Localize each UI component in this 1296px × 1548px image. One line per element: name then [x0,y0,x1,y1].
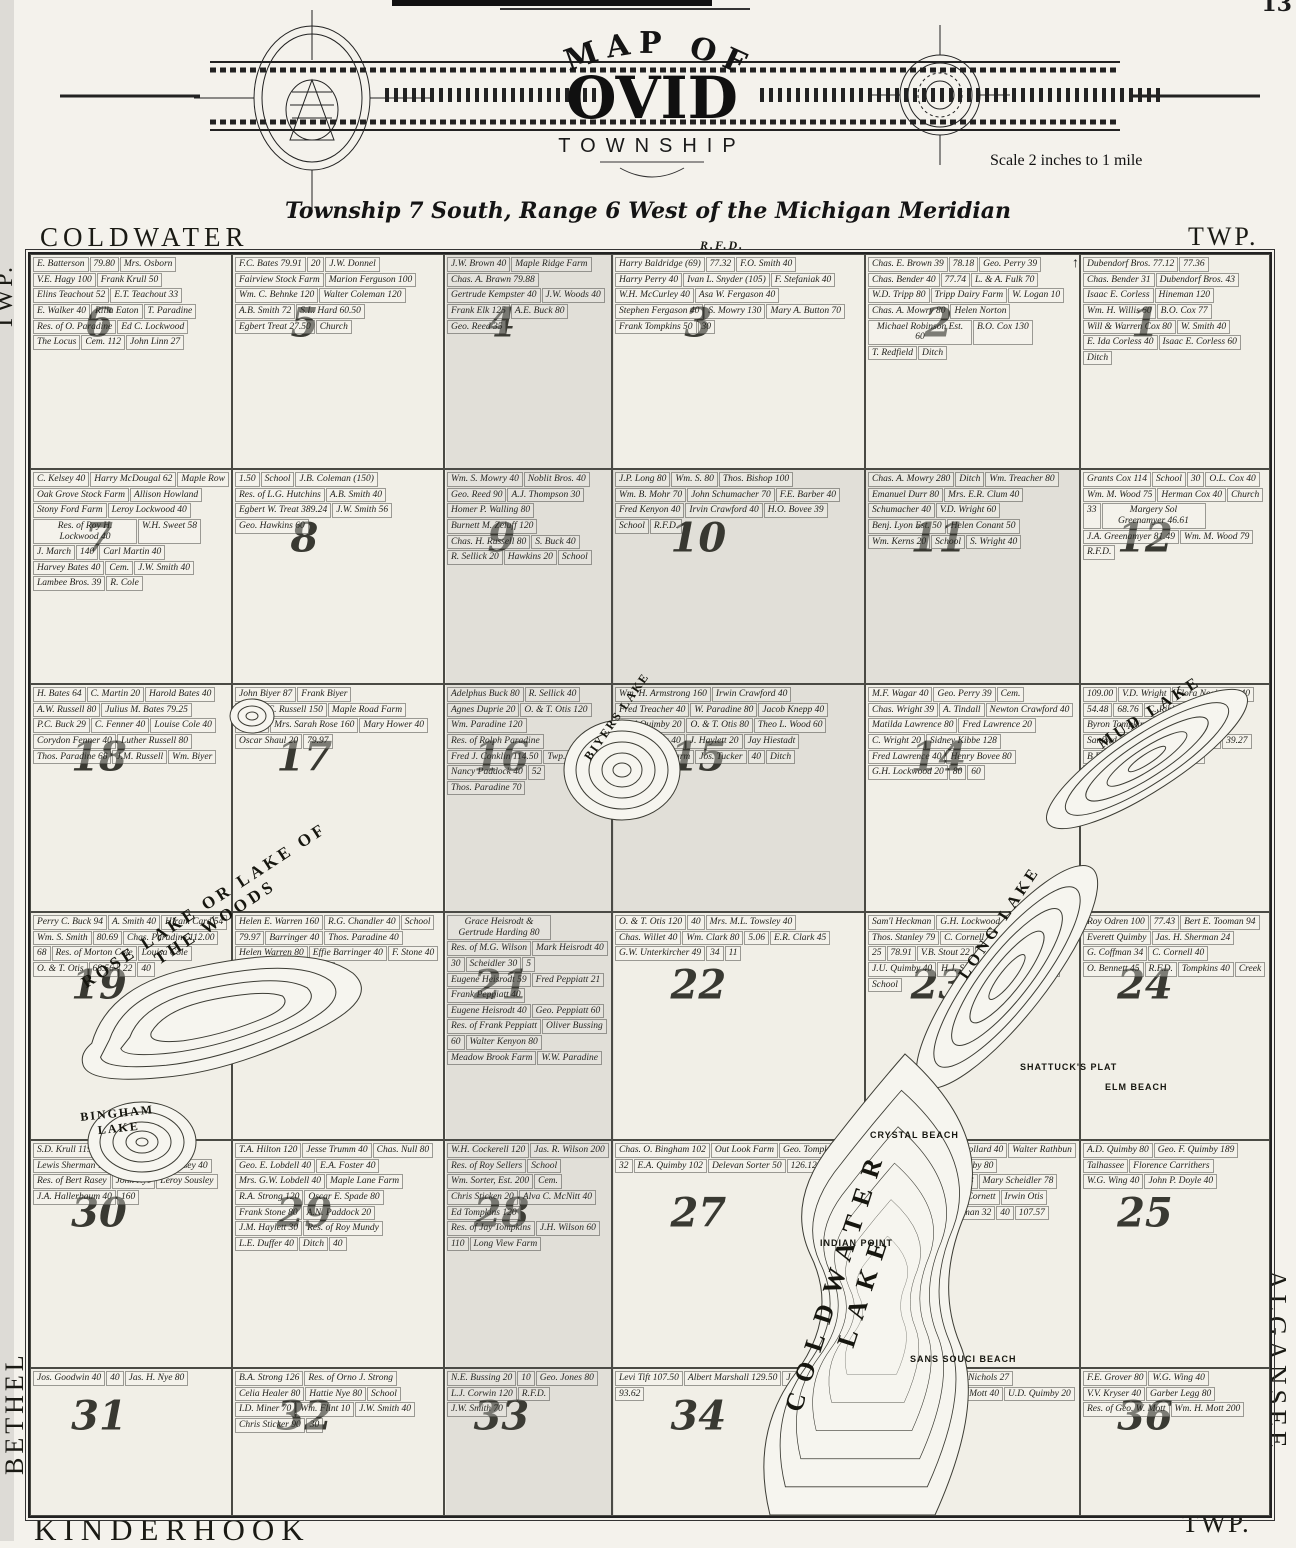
parcel-label: R.F.D. [1083,545,1115,560]
parcel-label: Fred J. Conklin 114.50 [447,750,542,765]
parcel-label: Irvin Crawford 40 [685,503,762,518]
parcel-label: Waldron 10 [1153,750,1205,765]
parcel-label: 40 [996,1206,1014,1221]
parcel-label: Twp. Hall [543,750,588,765]
parcel-label: V.D. Wright 60 [936,503,1000,518]
parcel-label: Fred Lawrence 40 [868,750,945,765]
parcel-list: B.A. Strong 126Res. of Orno J. StrongCel… [235,1371,441,1433]
parcel-label: Oak Grove Stock Farm [33,488,129,503]
parcel-label: 109.00 [1083,687,1117,702]
parcel-label: Mary A. Button 70 [766,304,845,319]
parcel-label: Dubendorf Bros. 43 [1156,273,1239,288]
parcel-label: 79.97 [303,734,332,749]
section-13: 13109.00V.D. WrightFlora Neairpass 4054.… [1080,684,1270,912]
parcel-label: Bert Rasey 40 [150,1159,211,1174]
parcel-label: U.D. Quimby 20 [1004,1387,1075,1402]
parcel-label: 52 [528,765,546,780]
parcel-label: C. Wright 20 [868,734,925,749]
parcel-list: Grace Heisrodt & Gertrude Harding 80Res.… [447,915,609,1065]
parcel-label: Chas. Paradine 112.00 [123,931,218,946]
parcel-label: Grants Cox 114 [1083,472,1151,487]
parcel-label: S. Buck 40 [531,535,579,550]
parcel-label: Frank Elk 125 [447,304,510,319]
parcel-label: M.F. Wagar 40 [868,687,932,702]
map-scale-note: Scale 2 inches to 1 mile [990,152,1142,169]
parcel-label: Res. of Orno J. Strong [304,1371,397,1386]
parcel-label: Luther Russell 80 [117,734,192,749]
parcel-label: Res. of Roy Sellers [447,1159,526,1174]
parcel-label: Dubendorf Bros. 77.12 [1083,257,1178,272]
parcel-label: 40 [748,750,766,765]
parcel-label: Everett Quimby [1083,931,1151,946]
parcel-label: 80.69 [93,931,122,946]
parcel-label: F.G. Pond 50 [1001,931,1060,946]
parcel-label: C. Cornell 40 [1148,946,1208,961]
parcel-label: W. Smith 40 [1177,320,1230,335]
parcel-label: L. & A. Fulk 70 [971,273,1038,288]
parcel-list: A.D. Quimby 80Geo. F. Quimby 189Talhasse… [1083,1143,1267,1189]
parcel-label: G.W. Unterkircher 49 [615,946,705,961]
parcel-label: Ed Tompkins 120 [447,1206,521,1221]
parcel-label: Louisa Cole [138,946,192,961]
parcel-label: Wm. Sorter, Est. 200 [447,1174,533,1189]
border-label-twp-top: TWP. [1188,222,1259,252]
parcel-label: Chris Sticker 90 [235,1418,305,1433]
parcel-label: Sam'l Heckman [868,915,935,930]
parcel-label: Harry McDougal 62 [90,472,176,487]
parcel-label: Geo. Peppiatt 60 [532,1004,605,1019]
parcel-list: Chas. O. Bingham 102Out Look FarmGeo. To… [615,1143,862,1173]
parcel-label: Wm. M. Wood 75 [1083,488,1156,503]
parcel-label: Cem. [105,561,133,576]
parcel-label: B.O. Cox 130 [973,320,1033,345]
parcel-label: Geo. Reed 90 [447,488,506,503]
parcel-label: C. Martin 20 [87,687,144,702]
parcel-label: Res. of Morton Cole [52,946,137,961]
parcel-label: Jay Hiestadt [744,734,800,749]
parcel-label: Alva C. McNitt 40 [519,1190,596,1205]
parcel-label: Thos. Stanley 79 [868,931,939,946]
parcel-label: J. March [33,545,75,560]
section-19: 19Perry C. Buck 94A. Smith 40Hiram Card … [30,912,232,1140]
parcel-label: Ditch [766,750,795,765]
parcel-list: E. Batterson79.80Mrs. OsbornV.E. Hagy 10… [33,257,229,350]
parcel-label: Wm. C. Behnke 120 [235,288,318,303]
parcel-label: Oliver Bussing [542,1019,607,1034]
parcel-label: Emma Noyes 40 [615,734,685,749]
parcel-list: N.E. Bussing 2010Geo. Jones 80L.J. Corwi… [447,1371,609,1417]
parcel-label: Thos. Paradine 70 [447,781,525,796]
parcel-label: Effie Barringer 40 [309,946,387,961]
parcel-list: Helen E. Warren 160R.G. Chandler 40Schoo… [235,915,441,977]
parcel-label: Michael Robinson Est. 60 [868,320,972,345]
parcel-label: Noblit Bros. 40 [524,472,590,487]
parcel-label: John P. Doyle 40 [1144,1174,1217,1189]
section-23: 23Sam'l HeckmanG.H. Lockwood 1697.86Thos… [865,912,1080,1140]
parcel-label: Marion Ferguson 100 [325,273,417,288]
parcel-label: 60 [447,1035,465,1050]
parcel-label: S.L. Hard 60.50 [296,304,365,319]
parcel-label: J.W. Smith 70 [447,1402,507,1417]
parcel-label: O. & T. Otis 80 [686,718,752,733]
parcel-label: Res. of Rolph Paradine [447,734,544,749]
parcel-label: C. Fenner 40 [91,718,149,733]
section-21: 21Grace Heisrodt & Gertrude Harding 80Re… [444,912,612,1140]
parcel-label: School [1152,472,1186,487]
parcel-label: Walter Coleman 120 [319,288,405,303]
parcel-label: Matilda Lawrence 80 [868,718,957,733]
parcel-label: 140 [76,545,98,560]
parcel-label: F. Stone 40 [388,946,438,961]
parcel-label: W.H. Cockerell 120 [447,1143,529,1158]
parcel-label: The Locus [33,335,80,350]
parcel-label: 1.50 [235,472,260,487]
parcel-label: Ditch [918,346,947,361]
parcel-label: 30 [447,957,465,972]
parcel-label: A. Tindall [939,703,984,718]
section-15: 15Wm. H. Armstrong 160Irwin Crawford 40F… [612,684,865,912]
parcel-label: 136.67 [235,718,269,733]
parcel-label: 30 [306,1418,324,1433]
parcel-label: 22 [119,962,137,977]
border-label-twp-left: TWP. [0,264,19,330]
parcel-label: F.E. Grover 80 [1083,1371,1147,1386]
parcel-label: Wm. Treacher 80 [985,472,1058,487]
parcel-list: E.W. Quimby 40O.L. Collard 40Walter Rath… [868,1143,1077,1220]
parcel-label: W. Logan 10 [1008,288,1064,303]
parcel-label: E.T. Teachout 33 [110,288,182,303]
parcel-label: John Linn 27 [126,335,184,350]
parcel-label: 40 [137,962,155,977]
parcel-label: Chas. H. Russell 80 [447,535,530,550]
parcel-label: 11 [725,946,742,961]
parcel-label: Jos. Tucker [695,750,746,765]
parcel-label: V.V. Kryser 40 [1083,1387,1145,1402]
parcel-label: Wm. Biyer [168,750,216,765]
parcel-label: 80 [949,765,967,780]
section-30: 30S.D. Krull 119.41T.A. HiltonLewis Sher… [30,1140,232,1368]
parcel-label: Lambee Bros. 39 [33,576,105,591]
parcel-label: Geo. E. Lobdell 40 [235,1159,315,1174]
parcel-label: V.E. Hagy 100 [33,273,96,288]
section-3: 3Harry Baldridge (69)77.32F.O. Smith 40H… [612,254,865,469]
parcel-label: V.D. Wright [1118,687,1170,702]
parcel-list: John Echtinaw 75O.F. Nichols 27Dora E. M… [868,1371,1077,1417]
parcel-list: Sam'l HeckmanG.H. Lockwood 1697.86Thos. … [868,915,1077,992]
parcel-label: J. Echtinaw [782,1371,835,1386]
parcel-label: Chas. Bender 31 [1083,273,1155,288]
parcel-label: Geo. Perry 39 [979,257,1041,272]
parcel-label: 107.57 [1015,1206,1049,1221]
section-5: 5F.C. Bates 79.9120J.W. DonnelFairview S… [232,254,444,469]
parcel-label: B.O. Cox 77 [1157,304,1212,319]
parcel-label: C. Cornell 16 [940,931,1000,946]
section-8: 81.50SchoolJ.B. Coleman (150)Res. of L.G… [232,469,444,684]
parcel-label: S. Wright 40 [966,535,1021,550]
parcel-label: J. Haylett 20 [686,734,743,749]
parcel-list: Perry C. Buck 94A. Smith 40Hiram Card 54… [33,915,229,977]
parcel-label: G.H. Lockwood 16 [936,915,1016,930]
parcel-label: Isaac E. Corless 60 [1159,335,1241,350]
parcel-label: Chas. Null 80 [373,1143,434,1158]
parcel-label: Wm. H. Armstrong 160 [615,687,711,702]
parcel-label: Harry Baldridge (69) [615,257,705,272]
parcel-label: Geo. Perry 39 [933,687,995,702]
parcel-label: E.A. Quimby 102 [634,1159,707,1174]
parcel-label: Maple Knoll Farm [615,750,694,765]
section-16: 16Adelphus Buck 80R. Sellick 40Agnes Dup… [444,684,612,912]
parcel-label: Res. of Frank Peppiatt [447,1019,541,1034]
parcel-label: 79.80 [90,257,119,272]
parcel-label: Geo. Tompkins 95 [779,1143,856,1158]
section-27: 27Chas. O. Bingham 102Out Look FarmGeo. … [612,1140,865,1368]
parcel-label: O. & T. Otis 120 [615,915,686,930]
parcel-label: 32 [615,1159,633,1174]
parcel-label: 110.00 [822,1159,855,1174]
parcel-label: 80 [317,962,335,977]
parcel-label: Emanuel Durr 80 [868,488,943,503]
parcel-label: Chas. Bender 40 [868,273,940,288]
parcel-label: Sanford Tompkins 40 [1083,734,1171,749]
parcel-label: E.A. Foster 40 [316,1159,379,1174]
parcel-list: S.D. Krull 119.41T.A. HiltonLewis Sherma… [33,1143,229,1205]
parcel-label: 25 [868,946,886,961]
section-36: 36F.E. Grover 80W.G. Wing 40V.V. Kryser … [1080,1368,1270,1516]
parcel-label: Wm. H. Mott 200 [1171,1402,1245,1417]
parcel-label: Mark Heisrodt 40 [532,941,608,956]
parcel-label: 68.76 [1113,703,1142,718]
parcel-label: John Echtinaw 75 [868,1371,945,1386]
section-35: 35John Echtinaw 75O.F. Nichols 27Dora E.… [865,1368,1080,1516]
section-22: 22O. & T. Otis 12040Mrs. M.L. Towsley 40… [612,912,865,1140]
parcel-list: Levi Tift 107.50Albert Marshall 129.50J.… [615,1371,862,1401]
parcel-label: Hiram Card 54 [161,915,227,930]
section-20: 20Helen E. Warren 160R.G. Chandler 40Sch… [232,912,444,1140]
parcel-label: F. Stefaniak 40 [771,273,836,288]
parcel-label: School [401,915,435,930]
parcel-label: Out Look Farm [711,1143,778,1158]
parcel-label: Res. of M.G. Wilson [447,941,531,956]
parcel-label: A. Tindall 70 [1165,718,1222,733]
section-33: 33N.E. Bussing 2010Geo. Jones 80L.J. Cor… [444,1368,612,1516]
parcel-label: Levi Tift 107.50 [615,1371,683,1386]
banner-top-rule [500,8,750,10]
parcel-label: Thos. Paradine 40 [324,931,402,946]
parcel-label: Helen Conant 50 [947,519,1020,534]
parcel-label: Scheidler 30 [466,957,522,972]
parcel-label: Fred Peppiatt 21 [532,973,605,988]
parcel-label: 39.27 [1222,734,1251,749]
parcel-label: 78.91 [887,946,916,961]
parcel-label: Irwin Crawford 40 [712,687,791,702]
parcel-label: Frank Muddle 100 [868,1174,947,1189]
parcel-label: Oscar Shaul 20 [235,734,302,749]
parcel-label: Nelson C. Russell 150 [235,703,327,718]
parcel-label: Louise Cole 40 [150,718,216,733]
left-emblem-icon [194,10,430,210]
parcel-label: Isaac E. Corless [1083,288,1154,303]
parcel-label: Celia Healer 80 [235,1387,304,1402]
parcel-label: A.B. Smith 72 [235,304,295,319]
parcel-label: Perry C. Buck 94 [33,915,107,930]
parcel-label: Frank Peppiatt 40 [447,988,525,1003]
parcel-label: Mrs. E.R. Clum 40 [944,488,1023,503]
parcel-label: Church [316,320,352,335]
section-number: 25 [1117,1190,1173,1237]
section-7: 7C. Kelsey 40Harry McDougal 62Maple RowO… [30,469,232,684]
parcel-label: Creek [1235,962,1265,977]
parcel-label: Wm. S. Smith [33,931,92,946]
parcel-label: 126.12 [787,1159,821,1174]
parcel-label: Flora Neairpass 40 [1172,687,1254,702]
parcel-label: Clark Sherman 32 [918,1206,996,1221]
parcel-label: 160 [117,1190,139,1205]
parcel-label: Jacob Knepp 40 [758,703,828,718]
parcel-label: Ed C. Lockwood [117,320,188,335]
parcel-label: Nancy Paddock 40 [447,765,527,780]
parcel-label: Fred Treacher 40 [615,703,689,718]
parcel-label: John Schumacher 70 [687,488,775,503]
parcel-label: Res. of O. Paradine [33,320,116,335]
parcel-label: Wm. S. 80 [671,472,718,487]
parcel-label: John Biyer 87 [235,687,296,702]
parcel-label: Dora E. Myers 40 [868,1387,945,1402]
parcel-label: Wm. Clark 80 [682,931,743,946]
parcel-label: Stony Ford Farm [33,503,107,518]
parcel-label: R.F.D. [650,519,682,534]
parcel-label: Maple Ridge Farm [511,257,591,272]
parcel-label: R.F.D. [518,1387,550,1402]
parcel-label: Eugene Heisrodt 40 [447,1004,531,1019]
parcel-label: Locas Hill 37 [1000,962,1060,977]
parcel-label: Frank Biyer [297,687,351,702]
parcel-label: Addison Tompkins [1083,765,1161,780]
parcel-label: Wm. B. Mohr 70 [615,488,686,503]
parcel-label: Mrs. G.W. Lobdell 40 [235,1174,325,1189]
parcel-label: Ditch [1083,351,1112,366]
parcel-label: 40 [329,1237,347,1252]
parcel-label: 77.74 [941,273,970,288]
parcel-label: N.E. Bussing 20 [447,1371,516,1386]
parcel-label: Fred Lawrence 20 [958,718,1035,733]
parcel-label: J.W. Smith 40 [355,1402,415,1417]
parcel-label: R.G. Chandler 40 [324,915,400,930]
parcel-label: Henry Bovee 80 [946,750,1015,765]
parcel-label: J.W. Donnel [325,257,379,272]
parcel-label: Gertrude Kempster 40 [447,288,541,303]
parcel-label: Res. of Roy H. Lockwood 40 [33,519,137,544]
parcel-label: Stephen Fergason 40 [615,304,703,319]
parcel-label: J.P. Long 80 [615,472,670,487]
parcel-label: Res. of Geo. W. Mott [1083,1402,1170,1417]
parcel-list: 109.00V.D. WrightFlora Neairpass 4054.48… [1083,687,1267,780]
parcel-label: F.O. Smith 40 [736,257,796,272]
parcel-label: Chas. O. Bingham 102 [615,1143,710,1158]
parcel-label: Allison Howland [130,488,202,503]
section-6: 6E. Batterson79.80Mrs. OsbornV.E. Hagy 1… [30,254,232,469]
parcel-label: 77.43 [1150,915,1179,930]
parcel-label: Res. of Roy Mundy [303,1221,383,1236]
parcel-label: J.W. Woods 40 [542,288,605,303]
parcel-list: Dubendorf Bros. 77.1277.36Chas. Bender 3… [1083,257,1267,365]
parcel-label: Chas. Willet 40 [615,931,681,946]
parcel-label: Agnes Duprie 20 [447,703,519,718]
parcel-label: Asa W. Fergason 40 [695,288,779,303]
parcel-label: 60 [967,765,985,780]
parcel-label: Church [1227,488,1263,503]
parcel-label: Newton Crawford 40 [986,703,1074,718]
parcel-label: Harvey Bates 40 [33,561,104,576]
parcel-label: Benj. Lyon Est. 50 [868,519,946,534]
parcel-label: W.D. Tripp 80 [868,288,930,303]
parcel-label: Harold Bates 40 [145,687,215,702]
parcel-label: Roy Odren 100 [1083,915,1149,930]
parcel-label: O. & T. Otis 120 [520,703,591,718]
sections-grid: 6E. Batterson79.80Mrs. OsbornV.E. Hagy 1… [30,254,1270,1516]
parcel-label: V.B. Stout 22 [917,946,974,961]
parcel-label: Adelphus Buck 80 [447,687,524,702]
section-9: 9Wm. S. Mowry 40Noblit Bros. 40Geo. Reed… [444,469,612,684]
parcel-label: Julius M. Bates 79.25 [101,703,192,718]
parcel-label: Eugene Heisrodt 59 [447,973,531,988]
section-18: 18H. Bates 64C. Martin 20Harold Bates 40… [30,684,232,912]
parcel-label: A.D. Quimby 80 [1083,1143,1153,1158]
parcel-label: I.D. Miner 70 [235,1402,295,1417]
border-label-bethel: BETHEL [0,1351,30,1475]
parcel-label: Hattie Nye 80 [305,1387,366,1402]
parcel-label: 34 [706,946,724,961]
parcel-label: 5 [522,957,535,972]
parcel-label: 40 [106,1371,124,1386]
parcel-label: A.E. Buck 80 [511,304,569,319]
parcel-label: 77.36 [1179,257,1208,272]
parcel-label: J.A. Hallerbaum 40 [33,1190,116,1205]
parcel-label: J.H. Wilson 60 [536,1221,600,1236]
parcel-label: L.E. Duffer 40 [235,1237,298,1252]
section-34: 34Levi Tift 107.50Albert Marshall 129.50… [612,1368,865,1516]
parcel-label: 40 [687,915,705,930]
parcel-label: Meadow Brook Farm [447,1051,536,1066]
parcel-label: 30 [1187,472,1205,487]
parcel-label: Ditch [299,1237,328,1252]
parcel-list: Chas. A. Mowry 280DitchWm. Treacher 80Em… [868,472,1077,549]
parcel-label: Talhassee [1083,1159,1128,1174]
parcel-label: Jesse Trumm 40 [302,1143,371,1158]
parcel-label: Frank Krull 50 [97,273,163,288]
parcel-label: Leroy Sousley [156,1174,217,1189]
parcel-label: 110 [447,1237,469,1252]
parcel-label: Chas. E. Brown 39 [868,257,948,272]
parcel-label: T. Paradine [144,304,197,319]
parcel-label: Mrs. Osborn [120,257,177,272]
parcel-label: Homer P. Walling 80 [447,503,534,518]
parcel-label: Chas. A. Mowry 80 [868,304,949,319]
parcel-label: Byron Tompkins 40 [1083,718,1164,733]
parcel-label: Maple Row [177,472,229,487]
parcel-label: B.A. Strong 126 [235,1371,303,1386]
parcel-label: P.C. Buck 29 [33,718,90,733]
parcel-label: 20 [307,257,325,272]
parcel-label: Geo. Jones 80 [536,1371,598,1386]
parcel-label: Jos. Goodwin 40 [33,1371,105,1386]
parcel-label: Harry Perry 40 [615,273,682,288]
parcel-label: R. Sellick 20 [447,550,503,565]
parcel-list: O. & T. Otis 12040Mrs. M.L. Towsley 40Ch… [615,915,862,961]
section-31: 31Jos. Goodwin 4040Jas. H. Nye 80 [30,1368,232,1516]
parcel-label: Chas. A. Mowry 280 [868,472,954,487]
parcel-label: S.D. Krull 119.41 [33,1143,108,1158]
border-label-coldwater: COLDWATER [40,222,249,253]
